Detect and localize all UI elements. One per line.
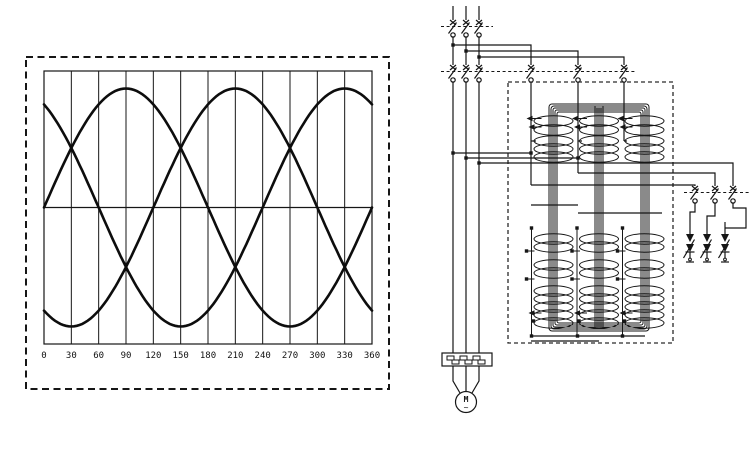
x-tick-label: 120	[145, 351, 161, 361]
switch-icon	[462, 65, 470, 82]
arrow-terminal-icon	[574, 124, 580, 129]
switch-icon	[729, 186, 737, 203]
arrow-terminal-icon	[527, 116, 533, 121]
terminal-square	[577, 319, 580, 322]
x-tick-label: 300	[309, 351, 325, 361]
x-tick-label: 60	[93, 351, 104, 361]
switch-icon	[574, 65, 582, 82]
overload-relay	[442, 353, 492, 366]
x-tick-label: 180	[200, 351, 216, 361]
thyristor-bank	[684, 222, 730, 262]
motor-symbol: M ~	[453, 366, 479, 413]
tap-switch-feeds	[531, 173, 715, 186]
switch-icon	[449, 20, 457, 37]
terminal-square	[530, 226, 533, 229]
transformer-core	[549, 104, 649, 331]
tap-selector-switches	[684, 186, 749, 228]
waveform-panel: 0306090120150180210240270300330360	[26, 57, 389, 389]
thyristor-icon	[701, 222, 712, 262]
terminal-square	[570, 277, 573, 280]
x-tick-label: 150	[173, 351, 189, 361]
x-tick-label: 0	[41, 351, 46, 361]
x-tick-label: 90	[121, 351, 132, 361]
switch-icon	[691, 186, 699, 203]
switch-icon	[711, 186, 719, 203]
transformer-leg-3-windings	[616, 116, 664, 336]
terminal-square	[621, 226, 624, 229]
breaker-row-1	[441, 20, 493, 37]
switch-icon	[620, 65, 628, 82]
terminal-square	[616, 249, 619, 252]
diagram-canvas: 0306090120150180210240270300330360	[0, 0, 750, 460]
switch-icon	[475, 65, 483, 82]
thyristor-icon	[684, 222, 695, 262]
x-tick-label: 240	[255, 351, 271, 361]
supply-lines	[453, 6, 479, 353]
terminal-square	[570, 249, 573, 252]
terminal-square	[623, 319, 626, 322]
terminal-square	[616, 277, 619, 280]
x-tick-label: 30	[66, 351, 77, 361]
phase-tap-lines	[451, 43, 624, 65]
switch-icon	[475, 20, 483, 37]
switch-icon	[527, 65, 535, 82]
contactor-row-2	[441, 65, 636, 82]
x-tick-label: 270	[282, 351, 298, 361]
x-tick-label: 330	[337, 351, 353, 361]
x-tick-label: 360	[364, 351, 380, 361]
schematic-page: 0306090120150180210240270300330360	[0, 0, 750, 460]
motor-ac-wave-label: ~	[464, 403, 469, 412]
terminal-square	[532, 319, 535, 322]
x-tick-label: 210	[227, 351, 243, 361]
switch-icon	[462, 20, 470, 37]
terminal-square	[525, 249, 528, 252]
terminal-square	[575, 226, 578, 229]
arrow-terminal-icon	[620, 124, 626, 129]
circuit-panel: M ~	[441, 6, 749, 413]
switch-icon	[449, 65, 457, 82]
terminal-square	[525, 277, 528, 280]
mainline-taps	[451, 151, 733, 186]
x-axis-labels: 0306090120150180210240270300330360	[41, 351, 380, 361]
